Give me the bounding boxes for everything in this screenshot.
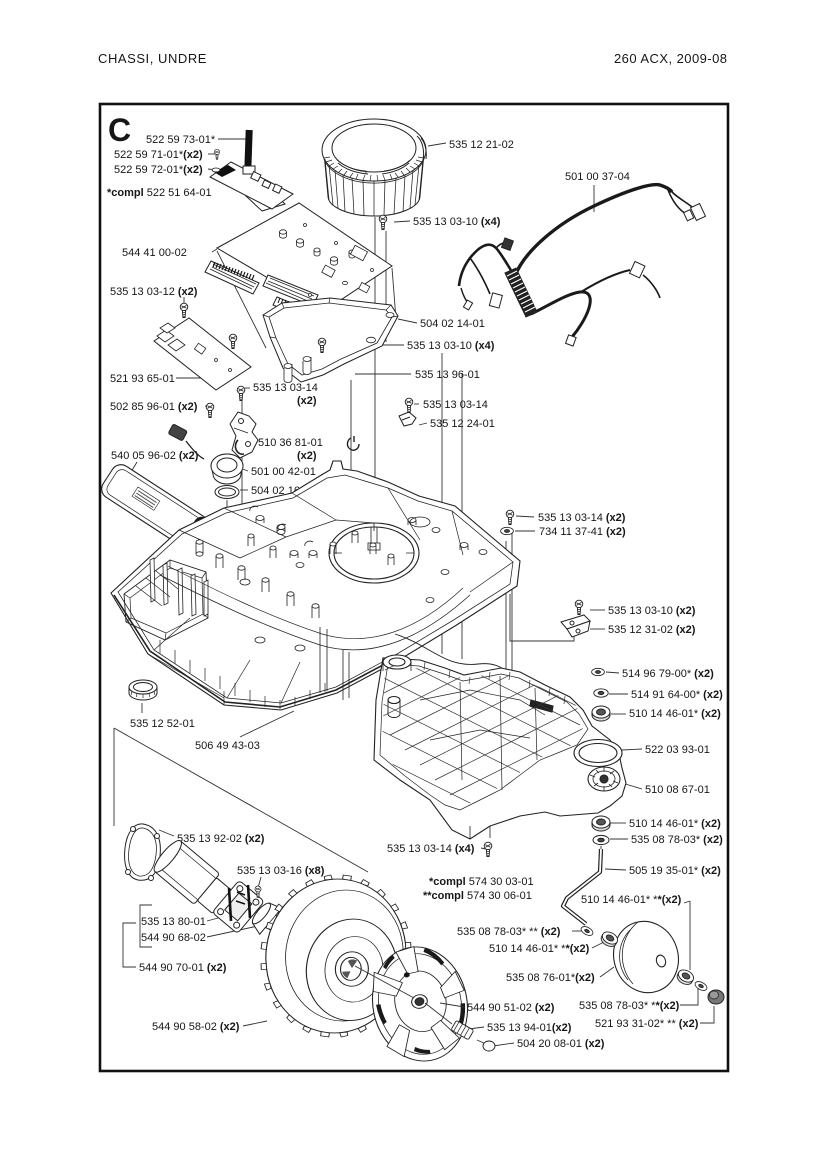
svg-text:544 41 00-02: 544 41 00-02 bbox=[122, 247, 187, 259]
svg-text:260 ACX, 2009-08: 260 ACX, 2009-08 bbox=[614, 51, 727, 66]
svg-text:510 14 46-01* **(x2): 510 14 46-01* **(x2) bbox=[489, 943, 590, 955]
svg-text:535 13 03-14: 535 13 03-14 bbox=[423, 399, 488, 411]
svg-text:522 59 73-01*: 522 59 73-01* bbox=[146, 134, 216, 146]
svg-text:544 90 58-02 (x2): 544 90 58-02 (x2) bbox=[152, 1021, 240, 1033]
svg-text:535 13 03-14 (x2): 535 13 03-14 (x2) bbox=[538, 512, 626, 524]
svg-text:535 13 03-14: 535 13 03-14 bbox=[253, 382, 318, 394]
svg-text:501 00 42-01: 501 00 42-01 bbox=[251, 466, 316, 478]
svg-text:*compl 522 51 64-01: *compl 522 51 64-01 bbox=[107, 187, 212, 199]
svg-text:505 19 35-01* (x2): 505 19 35-01* (x2) bbox=[629, 865, 721, 877]
svg-text:504 20 08-01 (x2): 504 20 08-01 (x2) bbox=[517, 1038, 605, 1050]
svg-text:535 08 78-03* (x2): 535 08 78-03* (x2) bbox=[631, 834, 723, 846]
svg-text:535 13 03-10 (x4): 535 13 03-10 (x4) bbox=[413, 216, 501, 228]
svg-text:544 90 70-01 (x2): 544 90 70-01 (x2) bbox=[139, 962, 227, 974]
svg-text:544 90 68-02: 544 90 68-02 bbox=[141, 932, 206, 944]
svg-text:521 93 31-02* ** (x2): 521 93 31-02* ** (x2) bbox=[595, 1018, 699, 1030]
svg-text:734 11 37-41 (x2): 734 11 37-41 (x2) bbox=[539, 526, 626, 538]
svg-text:522 59 72-01*(x2): 522 59 72-01*(x2) bbox=[114, 164, 203, 176]
svg-text:535 13 03-14 (x4): 535 13 03-14 (x4) bbox=[387, 843, 475, 855]
svg-text:514 96 79-00* (x2): 514 96 79-00* (x2) bbox=[622, 668, 714, 680]
svg-text:510 36 81-01: 510 36 81-01 bbox=[258, 437, 323, 449]
svg-text:510 14 46-01* (x2): 510 14 46-01* (x2) bbox=[629, 708, 721, 720]
svg-text:535 12 24-01: 535 12 24-01 bbox=[430, 418, 495, 430]
svg-text:522 03 93-01: 522 03 93-01 bbox=[645, 744, 710, 756]
svg-text:535 08 76-01*(x2): 535 08 76-01*(x2) bbox=[506, 972, 595, 984]
svg-text:544 90 51-02 (x2): 544 90 51-02 (x2) bbox=[467, 1002, 555, 1014]
svg-text:510 14 46-01* **(x2): 510 14 46-01* **(x2) bbox=[581, 894, 682, 906]
svg-text:535 13 94-01(x2): 535 13 94-01(x2) bbox=[487, 1022, 572, 1034]
svg-text:502 85 96-01 (x2): 502 85 96-01 (x2) bbox=[110, 401, 198, 413]
svg-text:540 05 96-02 (x2): 540 05 96-02 (x2) bbox=[111, 450, 199, 462]
svg-text:510 08 67-01: 510 08 67-01 bbox=[645, 784, 710, 796]
svg-text:535 12 52-01: 535 12 52-01 bbox=[130, 718, 195, 730]
svg-text:CHASSI, UNDRE: CHASSI, UNDRE bbox=[98, 51, 207, 66]
svg-text:535 12 21-02: 535 12 21-02 bbox=[449, 139, 514, 151]
svg-text:535 08 78-03* ** (x2): 535 08 78-03* ** (x2) bbox=[457, 926, 561, 938]
svg-text:C: C bbox=[108, 112, 131, 148]
svg-text:535 12 31-02 (x2): 535 12 31-02 (x2) bbox=[608, 624, 696, 636]
svg-text:535 13 03-10 (x4): 535 13 03-10 (x4) bbox=[407, 340, 495, 352]
svg-text:**compl 574 30 06-01: **compl 574 30 06-01 bbox=[423, 890, 532, 902]
svg-text:514 91 64-00* (x2): 514 91 64-00* (x2) bbox=[631, 689, 723, 701]
svg-text:504 02 14-01: 504 02 14-01 bbox=[420, 318, 485, 330]
svg-text:535 13 96-01: 535 13 96-01 bbox=[415, 369, 480, 381]
svg-text:(x2): (x2) bbox=[297, 450, 317, 462]
svg-text:535 13 03-12 (x2): 535 13 03-12 (x2) bbox=[110, 286, 198, 298]
svg-text:510 14 46-01* (x2): 510 14 46-01* (x2) bbox=[629, 818, 721, 830]
svg-text:(x2): (x2) bbox=[297, 395, 317, 407]
svg-text:*compl 574 30 03-01: *compl 574 30 03-01 bbox=[429, 876, 534, 888]
svg-text:535 13 80-01: 535 13 80-01 bbox=[141, 916, 206, 928]
svg-text:535 08 78-03* **(x2): 535 08 78-03* **(x2) bbox=[579, 1000, 680, 1012]
svg-text:501 00 37-04: 501 00 37-04 bbox=[565, 171, 630, 183]
svg-text:535 13 03-10 (x2): 535 13 03-10 (x2) bbox=[608, 605, 696, 617]
svg-text:522 59 71-01*(x2): 522 59 71-01*(x2) bbox=[114, 149, 203, 161]
svg-text:535 13 92-02 (x2): 535 13 92-02 (x2) bbox=[177, 833, 265, 845]
svg-text:521 93 65-01: 521 93 65-01 bbox=[110, 373, 175, 385]
svg-text:506 49 43-03: 506 49 43-03 bbox=[195, 740, 260, 752]
svg-text:535 13 03-16 (x8): 535 13 03-16 (x8) bbox=[237, 865, 325, 877]
